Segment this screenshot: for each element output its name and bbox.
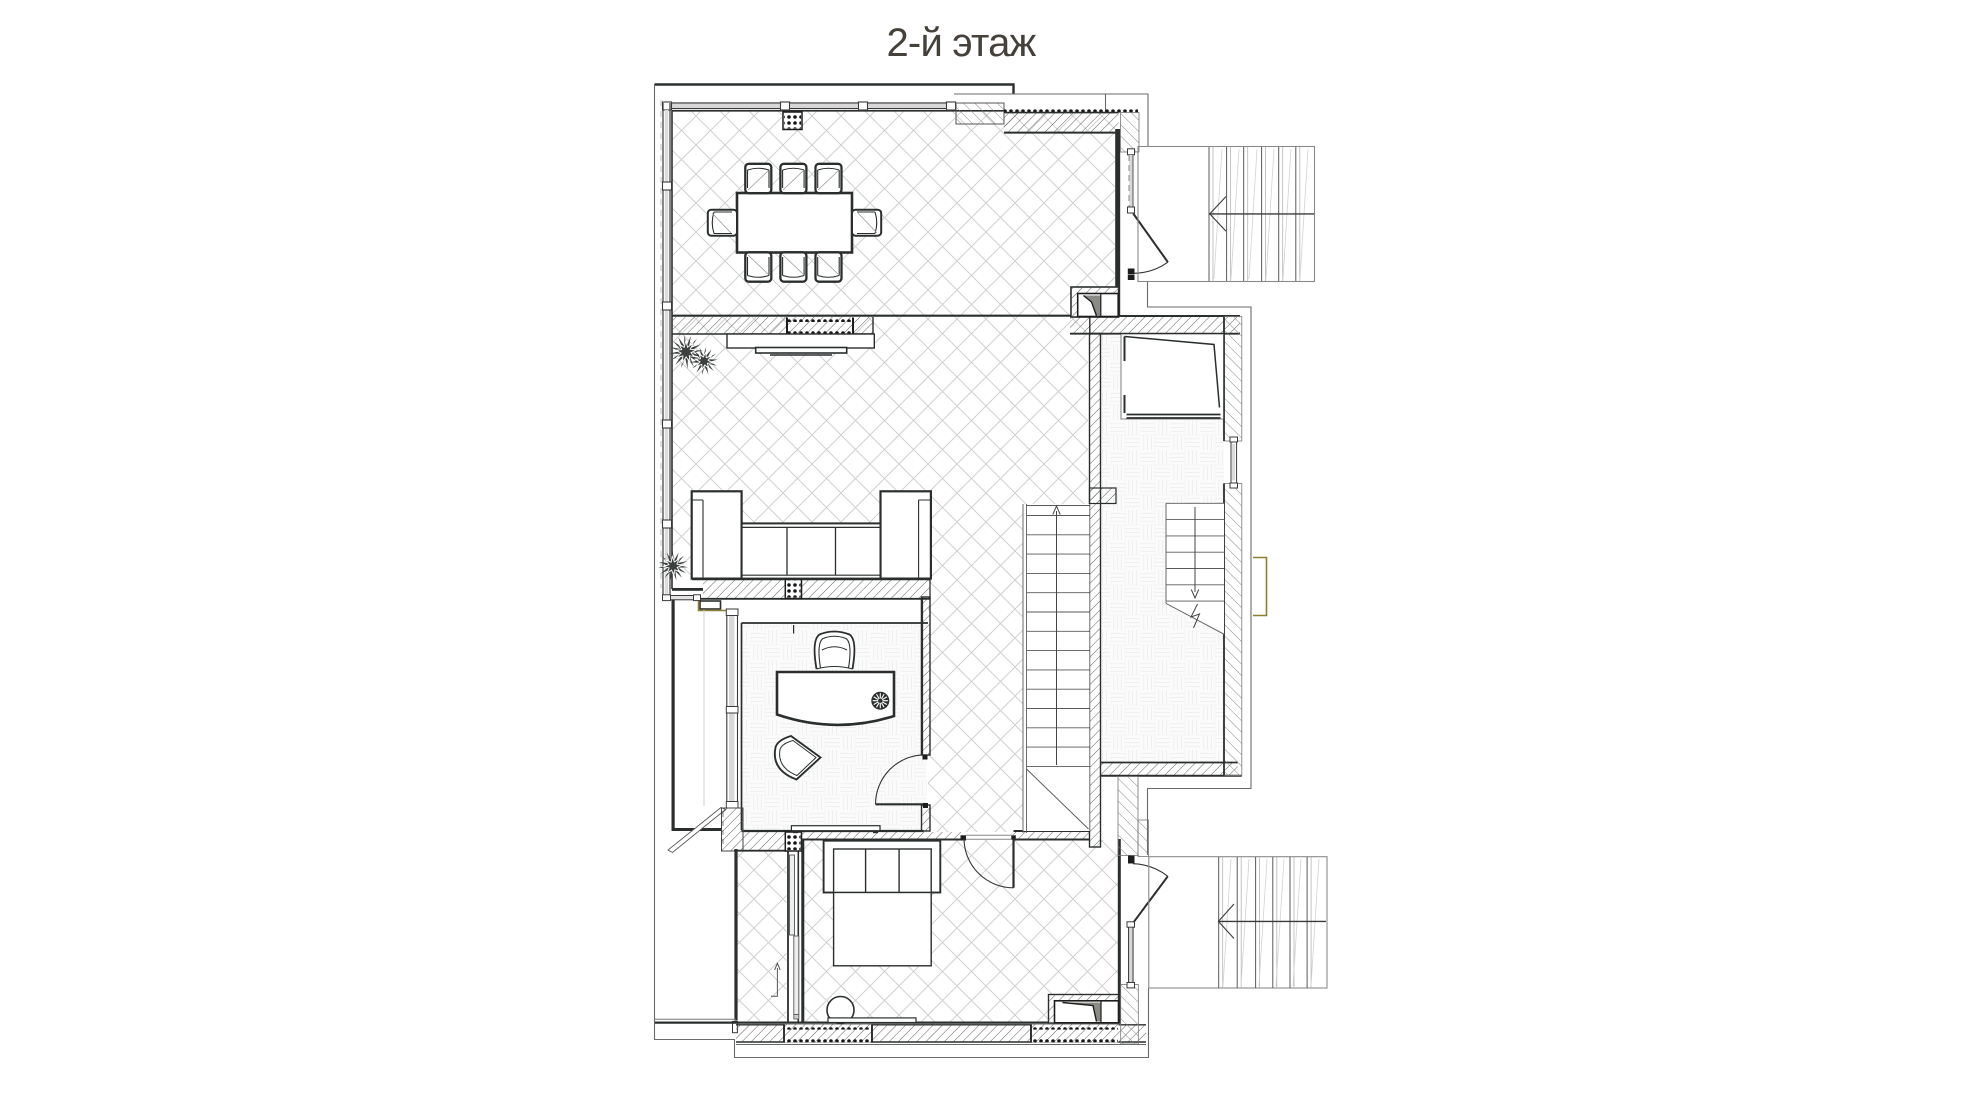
svg-text:2-й этаж: 2-й этаж bbox=[886, 21, 1036, 65]
